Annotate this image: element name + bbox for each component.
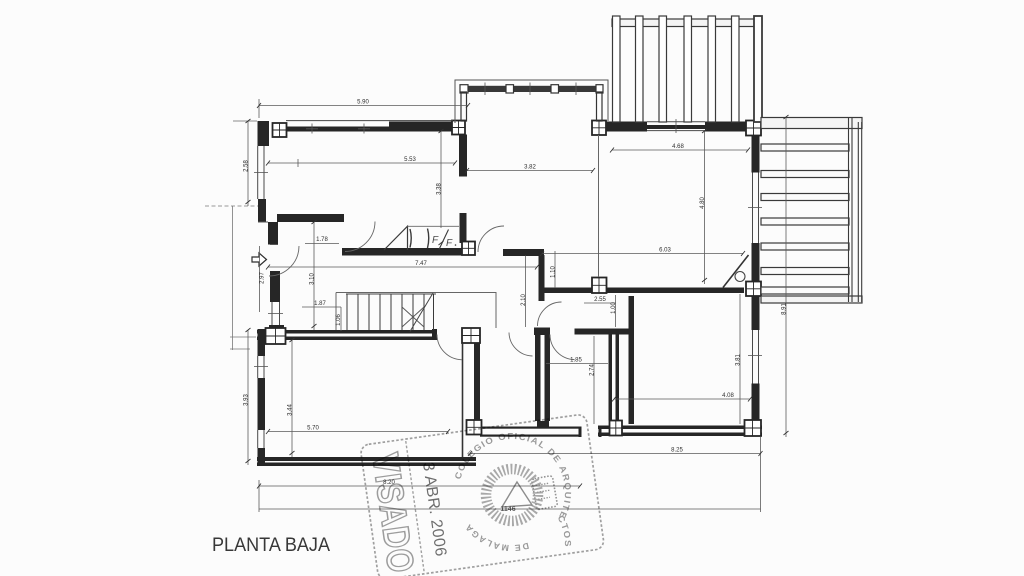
svg-text:F: F (446, 238, 453, 249)
svg-text:4.08: 4.08 (722, 393, 734, 399)
svg-text:2.55: 2.55 (594, 297, 606, 303)
svg-text:5.70: 5.70 (307, 426, 319, 432)
svg-text:7.47: 7.47 (415, 261, 427, 267)
svg-text:F: F (432, 235, 439, 246)
svg-text:3.44: 3.44 (288, 404, 294, 416)
svg-text:2.97: 2.97 (260, 272, 266, 284)
svg-text:8.25: 8.25 (671, 448, 683, 454)
svg-text:3.93: 3.93 (244, 394, 250, 406)
svg-text:2.58: 2.58 (244, 160, 250, 172)
svg-text:3.38: 3.38 (437, 183, 443, 195)
svg-text:3.10: 3.10 (310, 273, 316, 285)
svg-text:2.74: 2.74 (590, 364, 596, 376)
svg-text:1.78: 1.78 (316, 237, 328, 243)
svg-text:5.53: 5.53 (404, 157, 416, 163)
svg-text:1.00: 1.00 (611, 302, 617, 314)
svg-text:PLANTA BAJA: PLANTA BAJA (212, 535, 330, 556)
svg-text:8.91: 8.91 (782, 303, 788, 315)
svg-text:2.10: 2.10 (521, 294, 527, 306)
svg-text:3.81: 3.81 (736, 354, 742, 366)
svg-text:6.03: 6.03 (659, 248, 671, 254)
svg-text:1.06: 1.06 (336, 314, 342, 326)
svg-text:1.10: 1.10 (551, 266, 557, 278)
svg-text:1.87: 1.87 (314, 301, 326, 307)
svg-text:4.68: 4.68 (672, 144, 684, 150)
svg-text:1.85: 1.85 (570, 358, 582, 364)
svg-text:5.90: 5.90 (357, 100, 369, 106)
svg-text:3.82: 3.82 (524, 165, 536, 171)
svg-text:1146: 1146 (500, 506, 515, 513)
svg-text:4.80: 4.80 (700, 197, 706, 209)
